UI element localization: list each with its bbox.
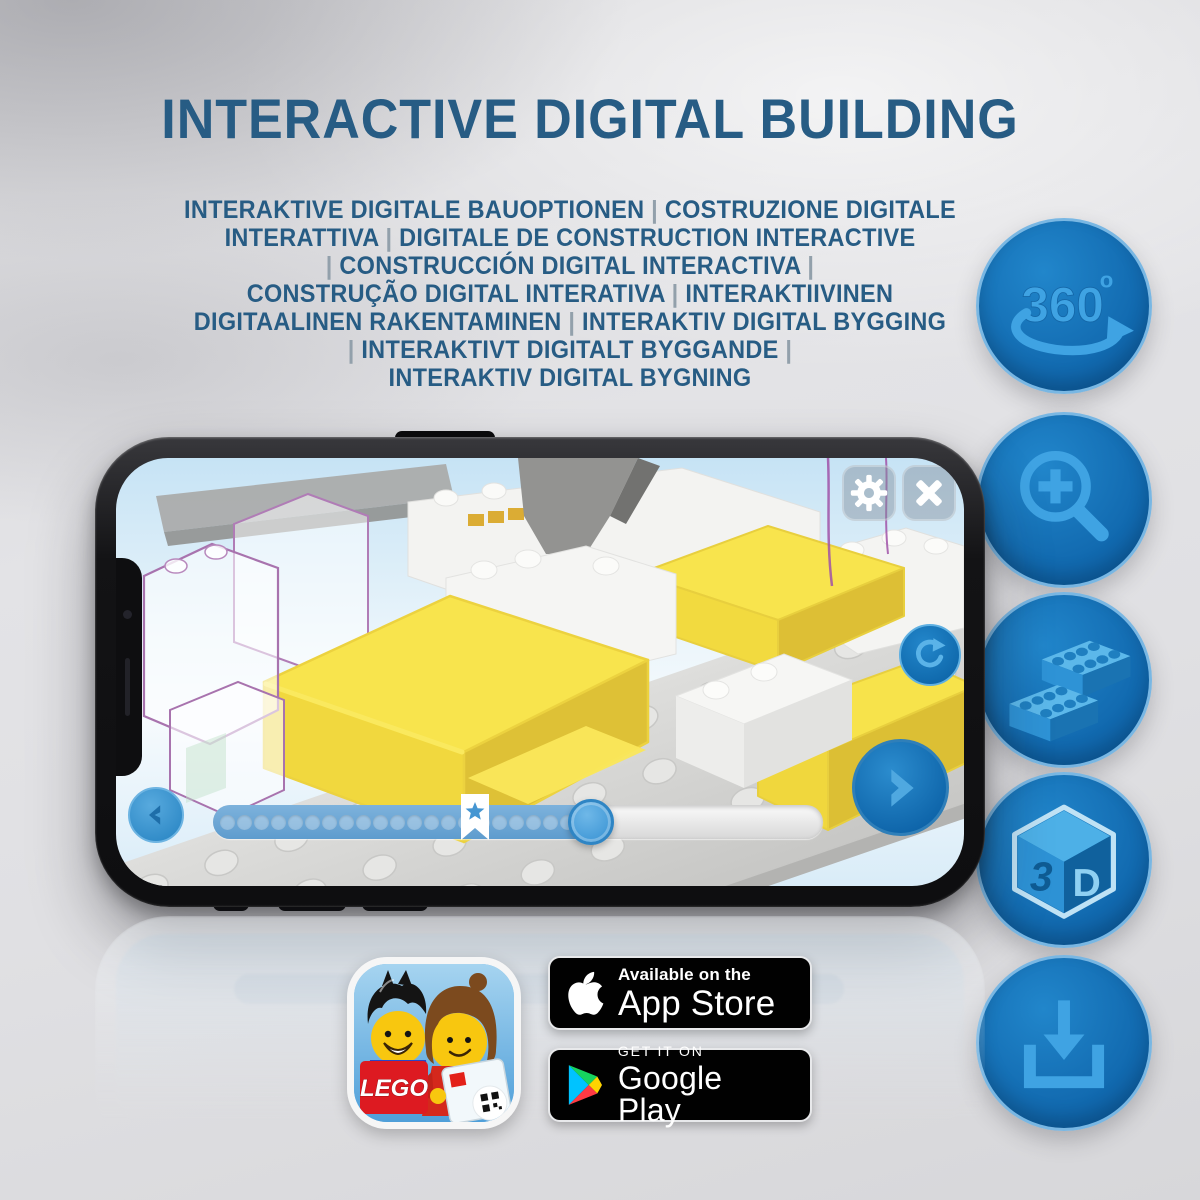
lego-minifigures-art: LEGO	[354, 964, 514, 1122]
progress-dot	[322, 815, 337, 830]
svg-text:D: D	[1073, 862, 1101, 905]
previous-step-button[interactable]	[128, 787, 184, 843]
progress-dot	[390, 815, 405, 830]
settings-button[interactable]	[842, 465, 896, 521]
progress-dot	[441, 815, 456, 830]
speaker-slit	[125, 658, 130, 716]
feature-bricks-badge	[976, 592, 1152, 768]
progress-dot	[271, 815, 286, 830]
lego-app-icon[interactable]: LEGO	[347, 957, 521, 1129]
chevron-right-icon	[875, 762, 927, 814]
app-store-tagline: Available on the	[618, 966, 775, 983]
close-icon	[910, 474, 948, 512]
progress-dot	[509, 815, 524, 830]
360-rotation-icon: 360 o	[989, 231, 1139, 381]
google-play-label: Google Play	[618, 1062, 794, 1126]
progress-dot	[356, 815, 371, 830]
rotate-view-button[interactable]	[899, 624, 961, 686]
phone-reflection	[95, 916, 985, 1161]
phone-mockup	[95, 437, 985, 907]
svg-text:360: 360	[1021, 277, 1103, 332]
svg-text:LEGO: LEGO	[360, 1075, 428, 1102]
progress-dot	[492, 815, 507, 830]
app-store-badge[interactable]: Available on the App Store	[548, 956, 812, 1030]
progress-dot	[373, 815, 388, 830]
feature-360-badge: 360 o	[976, 218, 1152, 394]
bookmark-star-icon	[460, 794, 490, 841]
feature-download-badge	[976, 955, 1152, 1131]
page-background: INTERACTIVE DIGITAL BUILDING INTERAKTIVE…	[0, 0, 1200, 1200]
progress-dot	[237, 815, 252, 830]
progress-dot	[288, 815, 303, 830]
progress-dot	[305, 815, 320, 830]
google-play-logo-icon	[566, 1064, 604, 1106]
next-step-button[interactable]	[852, 739, 949, 836]
build-progress-bar[interactable]	[213, 805, 823, 839]
lego-logo: LEGO	[360, 1061, 428, 1114]
progress-handle[interactable]	[568, 799, 614, 845]
close-button[interactable]	[902, 465, 956, 521]
progress-dot	[339, 815, 354, 830]
progress-dot	[526, 815, 541, 830]
progress-dot	[254, 815, 269, 830]
download-icon	[989, 968, 1139, 1118]
phone-notch	[116, 558, 142, 776]
progress-dot	[424, 815, 439, 830]
progress-dot	[543, 815, 558, 830]
chevron-left-icon	[142, 801, 170, 829]
bricks-icon	[989, 605, 1139, 755]
svg-text:o: o	[1100, 267, 1114, 292]
google-play-badge[interactable]: GET IT ON Google Play	[548, 1048, 812, 1122]
zoom-in-icon	[989, 425, 1139, 575]
3d-cube-icon: 3 D	[989, 785, 1139, 935]
apple-logo-icon	[566, 970, 604, 1016]
gear-icon	[849, 473, 889, 513]
progress-fill	[213, 805, 591, 839]
phone-screen	[116, 458, 964, 886]
rotate-icon	[909, 634, 951, 676]
svg-text:3: 3	[1030, 854, 1053, 900]
app-store-label: App Store	[618, 986, 775, 1021]
google-play-tagline: GET IT ON	[618, 1044, 794, 1058]
progress-dot	[407, 815, 422, 830]
progress-dot	[220, 815, 235, 830]
feature-zoom-badge	[976, 412, 1152, 588]
camera-icon	[123, 610, 132, 619]
page-title: INTERACTIVE DIGITAL BUILDING	[32, 86, 1148, 151]
feature-3d-badge: 3 D	[976, 772, 1152, 948]
subtitle-translations: INTERAKTIVE DIGITALE BAUOPTIONEN | COSTR…	[6, 196, 1134, 392]
progress-bookmark	[460, 794, 490, 841]
